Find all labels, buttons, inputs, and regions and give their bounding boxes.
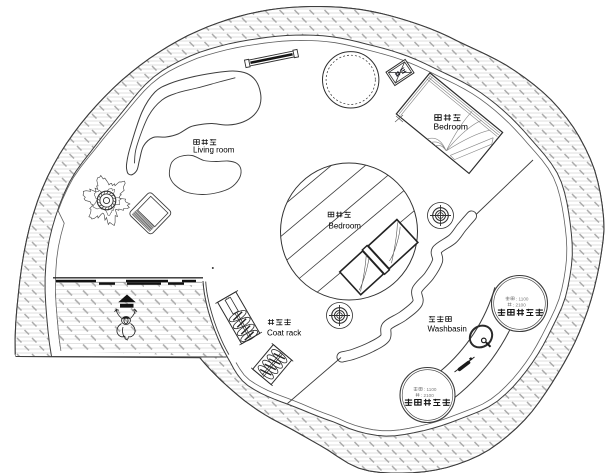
svg-text:: 1100: : 1100 [424, 387, 437, 392]
svg-text:: 1100: : 1100 [516, 297, 529, 302]
svg-text:: 2100: : 2100 [513, 303, 526, 308]
svg-text:Bedroom: Bedroom [329, 222, 362, 231]
svg-text:Coat rack: Coat rack [267, 329, 302, 338]
svg-text:Washbasin: Washbasin [428, 325, 467, 334]
svg-text:Living room: Living room [193, 146, 235, 155]
svg-text:: 2100: : 2100 [421, 393, 434, 398]
svg-text:Bedroom: Bedroom [434, 122, 469, 132]
